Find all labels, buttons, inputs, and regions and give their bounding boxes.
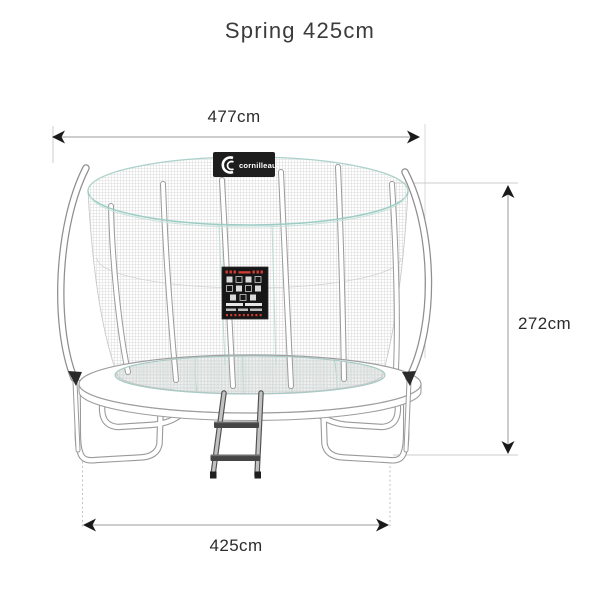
dimension-base-width: 425cm	[209, 536, 262, 555]
trampoline-diagram: cornilleau	[0, 0, 600, 600]
ladder-foot	[210, 472, 217, 479]
placard-red-dots	[226, 314, 262, 316]
safety-placard	[222, 267, 268, 319]
cornilleau-logo-badge: cornilleau	[213, 152, 277, 177]
dimension-top-width: 477cm	[207, 107, 260, 126]
logo-text: cornilleau	[239, 161, 277, 170]
product-dimension-diagram: Spring 425cm	[0, 0, 600, 600]
ladder-foot	[255, 472, 262, 479]
dimension-height: 272cm	[518, 314, 571, 333]
